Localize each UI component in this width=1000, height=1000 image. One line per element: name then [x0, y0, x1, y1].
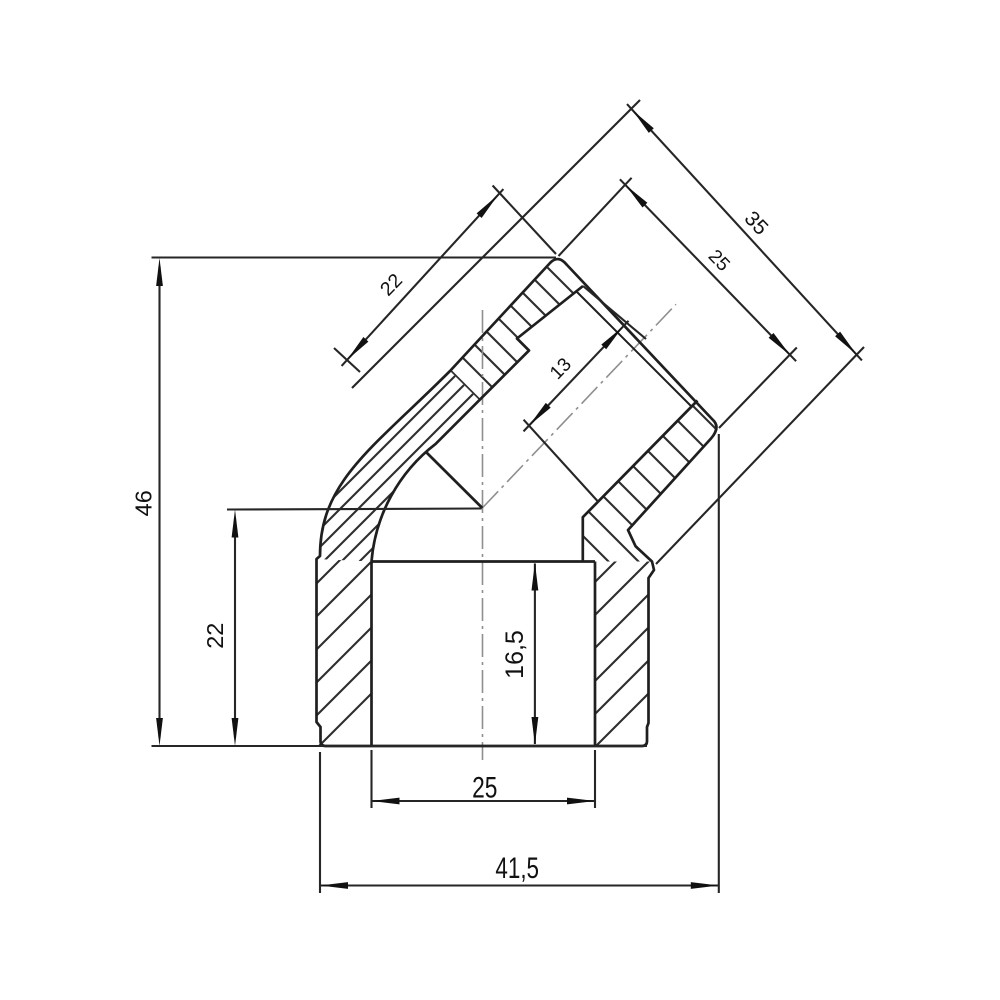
svg-text:25: 25: [472, 771, 497, 805]
svg-text:16,5: 16,5: [501, 630, 529, 679]
svg-text:22: 22: [202, 623, 228, 649]
svg-text:46: 46: [131, 490, 157, 516]
svg-text:41,5: 41,5: [495, 851, 539, 885]
